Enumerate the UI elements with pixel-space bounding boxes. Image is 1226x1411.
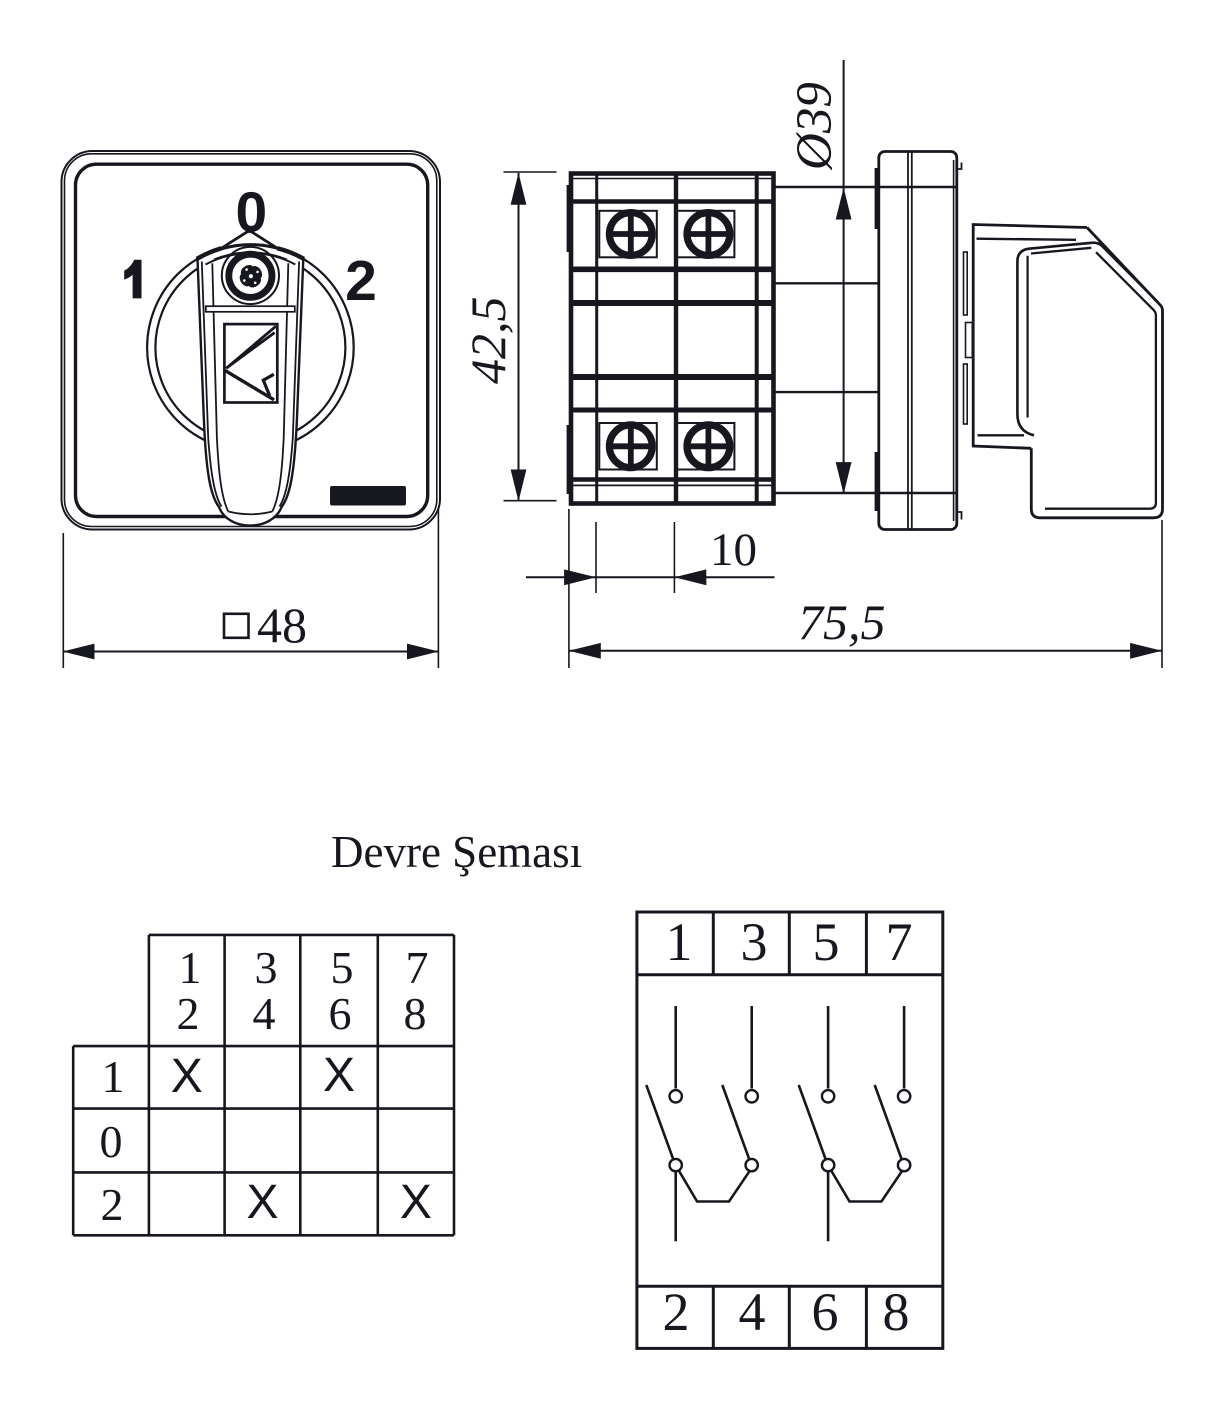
svg-text:3: 3 <box>255 942 278 993</box>
svg-text:8: 8 <box>404 988 427 1039</box>
svg-text:4: 4 <box>253 988 276 1039</box>
svg-text:2: 2 <box>177 988 200 1039</box>
svg-text:7: 7 <box>406 942 429 993</box>
svg-text:X: X <box>246 1176 278 1229</box>
svg-text:1: 1 <box>666 912 693 972</box>
svg-text:6: 6 <box>329 988 352 1039</box>
svg-text:2: 2 <box>663 1282 690 1342</box>
svg-text:5: 5 <box>813 912 840 972</box>
svg-text:48: 48 <box>257 597 307 653</box>
svg-text:75,5: 75,5 <box>798 594 886 650</box>
svg-text:8: 8 <box>883 1282 910 1342</box>
svg-text:Devre Şeması: Devre Şeması <box>331 827 582 877</box>
svg-text:1: 1 <box>179 942 202 993</box>
svg-text:6: 6 <box>812 1282 839 1342</box>
svg-text:10: 10 <box>710 524 757 576</box>
svg-text:X: X <box>171 1050 203 1103</box>
svg-text:42,5: 42,5 <box>460 297 516 385</box>
svg-text:4: 4 <box>739 1282 766 1342</box>
svg-text:Ø39: Ø39 <box>787 82 843 171</box>
svg-text:5: 5 <box>331 942 354 993</box>
svg-text:2: 2 <box>345 249 377 313</box>
svg-text:3: 3 <box>741 912 768 972</box>
svg-text:0: 0 <box>100 1116 123 1167</box>
svg-text:7: 7 <box>886 912 913 972</box>
svg-text:2: 2 <box>101 1179 124 1230</box>
svg-text:X: X <box>400 1176 432 1229</box>
svg-text:1: 1 <box>102 1051 125 1102</box>
svg-text:X: X <box>323 1049 355 1102</box>
